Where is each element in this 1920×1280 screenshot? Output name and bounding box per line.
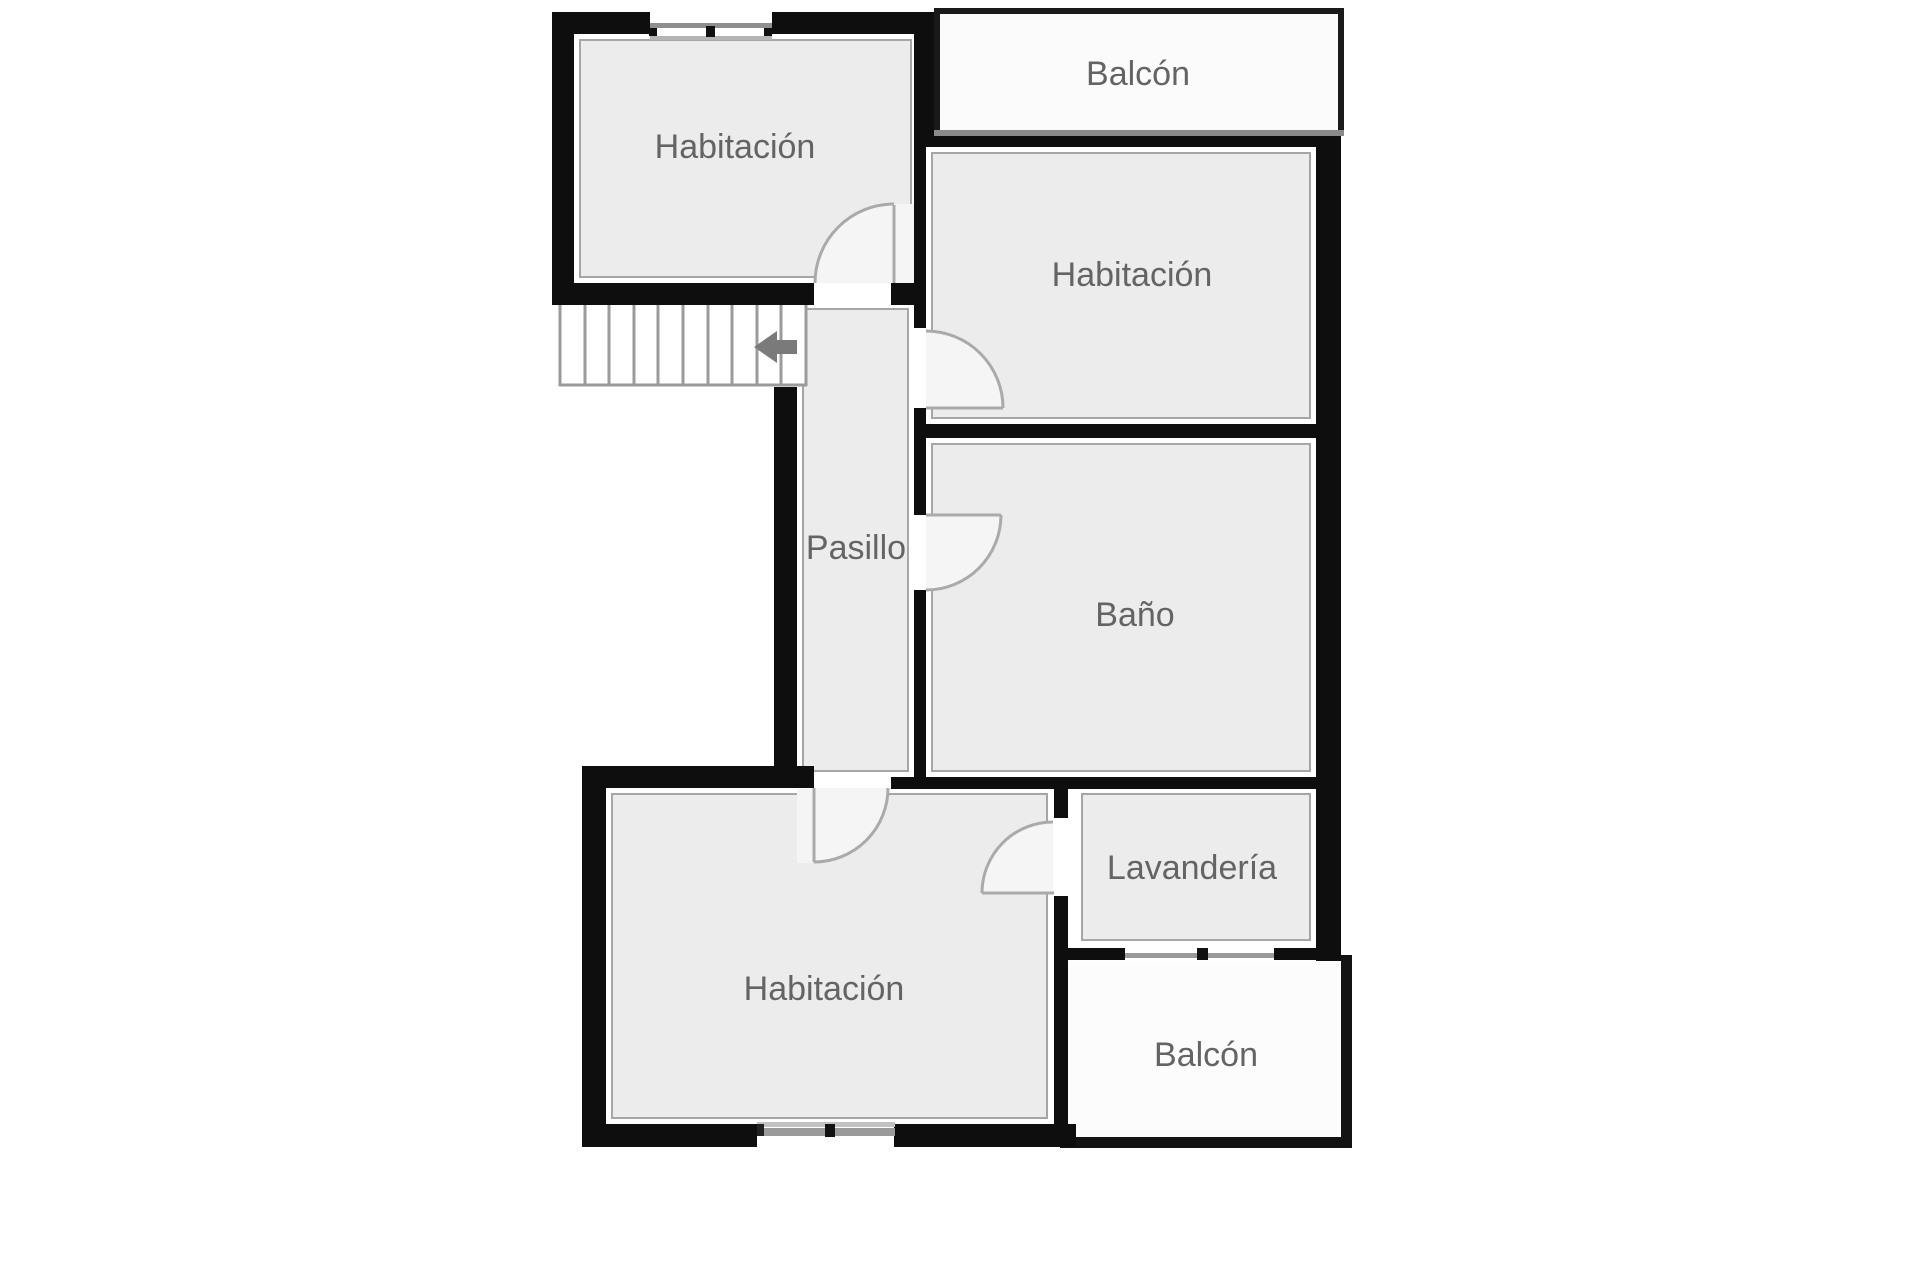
svg-text:Pasillo: Pasillo — [806, 529, 906, 567]
svg-text:Balcón: Balcón — [1154, 1036, 1258, 1074]
svg-text:Habitación: Habitación — [1052, 256, 1213, 294]
svg-text:Balcón: Balcón — [1086, 55, 1190, 93]
svg-text:Habitación: Habitación — [744, 970, 905, 1008]
svg-text:Habitación: Habitación — [655, 128, 816, 166]
svg-text:Baño: Baño — [1095, 596, 1174, 634]
svg-text:Lavandería: Lavandería — [1107, 849, 1277, 887]
